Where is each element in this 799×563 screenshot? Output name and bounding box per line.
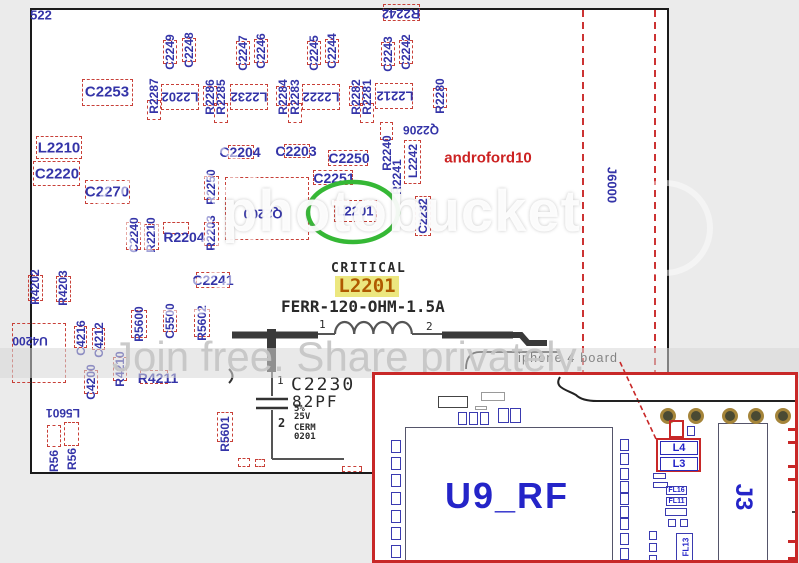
inset-component (510, 408, 521, 423)
u9-rf-label: U9_RF (445, 475, 569, 517)
inset-component (391, 457, 401, 470)
inset-component (391, 545, 401, 558)
inset-component (620, 506, 629, 518)
inset-component (687, 426, 695, 436)
fl11-label: FL11 (666, 497, 687, 506)
inset-component (481, 392, 505, 401)
board-photo-inset: U9_RF J3 L4 L3 FL16 FL11 FL13 (372, 372, 798, 563)
via-pad (688, 408, 704, 424)
inset-component (730, 420, 756, 424)
inset-component (790, 449, 798, 452)
via-pad (775, 408, 791, 424)
inset-component (498, 408, 509, 423)
l3-label: L3 (660, 457, 698, 471)
inset-component (620, 481, 629, 493)
fl13-text: FL13 (682, 538, 690, 557)
j3-label: J3 (729, 484, 757, 511)
fl16-label: FL16 (666, 486, 687, 495)
inset-component (620, 533, 629, 545)
inset-component (653, 482, 668, 488)
inset-component (391, 474, 401, 487)
inset-component (788, 465, 798, 481)
inset-component (620, 518, 629, 530)
inset-component (620, 439, 629, 451)
inset-component (649, 543, 657, 552)
inset-component (391, 527, 401, 540)
inset-component (391, 440, 401, 453)
inset-component (792, 511, 798, 513)
inset-component (620, 453, 629, 465)
inset-component (391, 510, 401, 523)
inset-component (620, 468, 629, 480)
inset-component (438, 396, 468, 408)
inset-component (788, 540, 798, 560)
inset-component (665, 508, 687, 516)
inset-component (757, 423, 763, 425)
inset-component (469, 412, 478, 425)
inset-component (653, 473, 666, 479)
inset-component (620, 548, 629, 560)
inset-component (649, 555, 657, 563)
inset-component (669, 420, 684, 438)
inset-component (620, 493, 629, 505)
screenshot-root: CRITICAL L2201 FERR-120-OHM-1.5A 1 2 C22… (0, 0, 799, 563)
inset-component (480, 412, 489, 425)
inset-component (788, 428, 798, 444)
inset-component (475, 406, 487, 410)
inset-component (668, 519, 676, 527)
fl13-label: FL13 (676, 533, 693, 561)
l4-label: L4 (660, 441, 698, 455)
inset-component (680, 519, 688, 527)
inset-component (391, 492, 401, 505)
inset-component (649, 531, 657, 540)
inset-component (458, 412, 467, 425)
inset-component (380, 404, 382, 432)
